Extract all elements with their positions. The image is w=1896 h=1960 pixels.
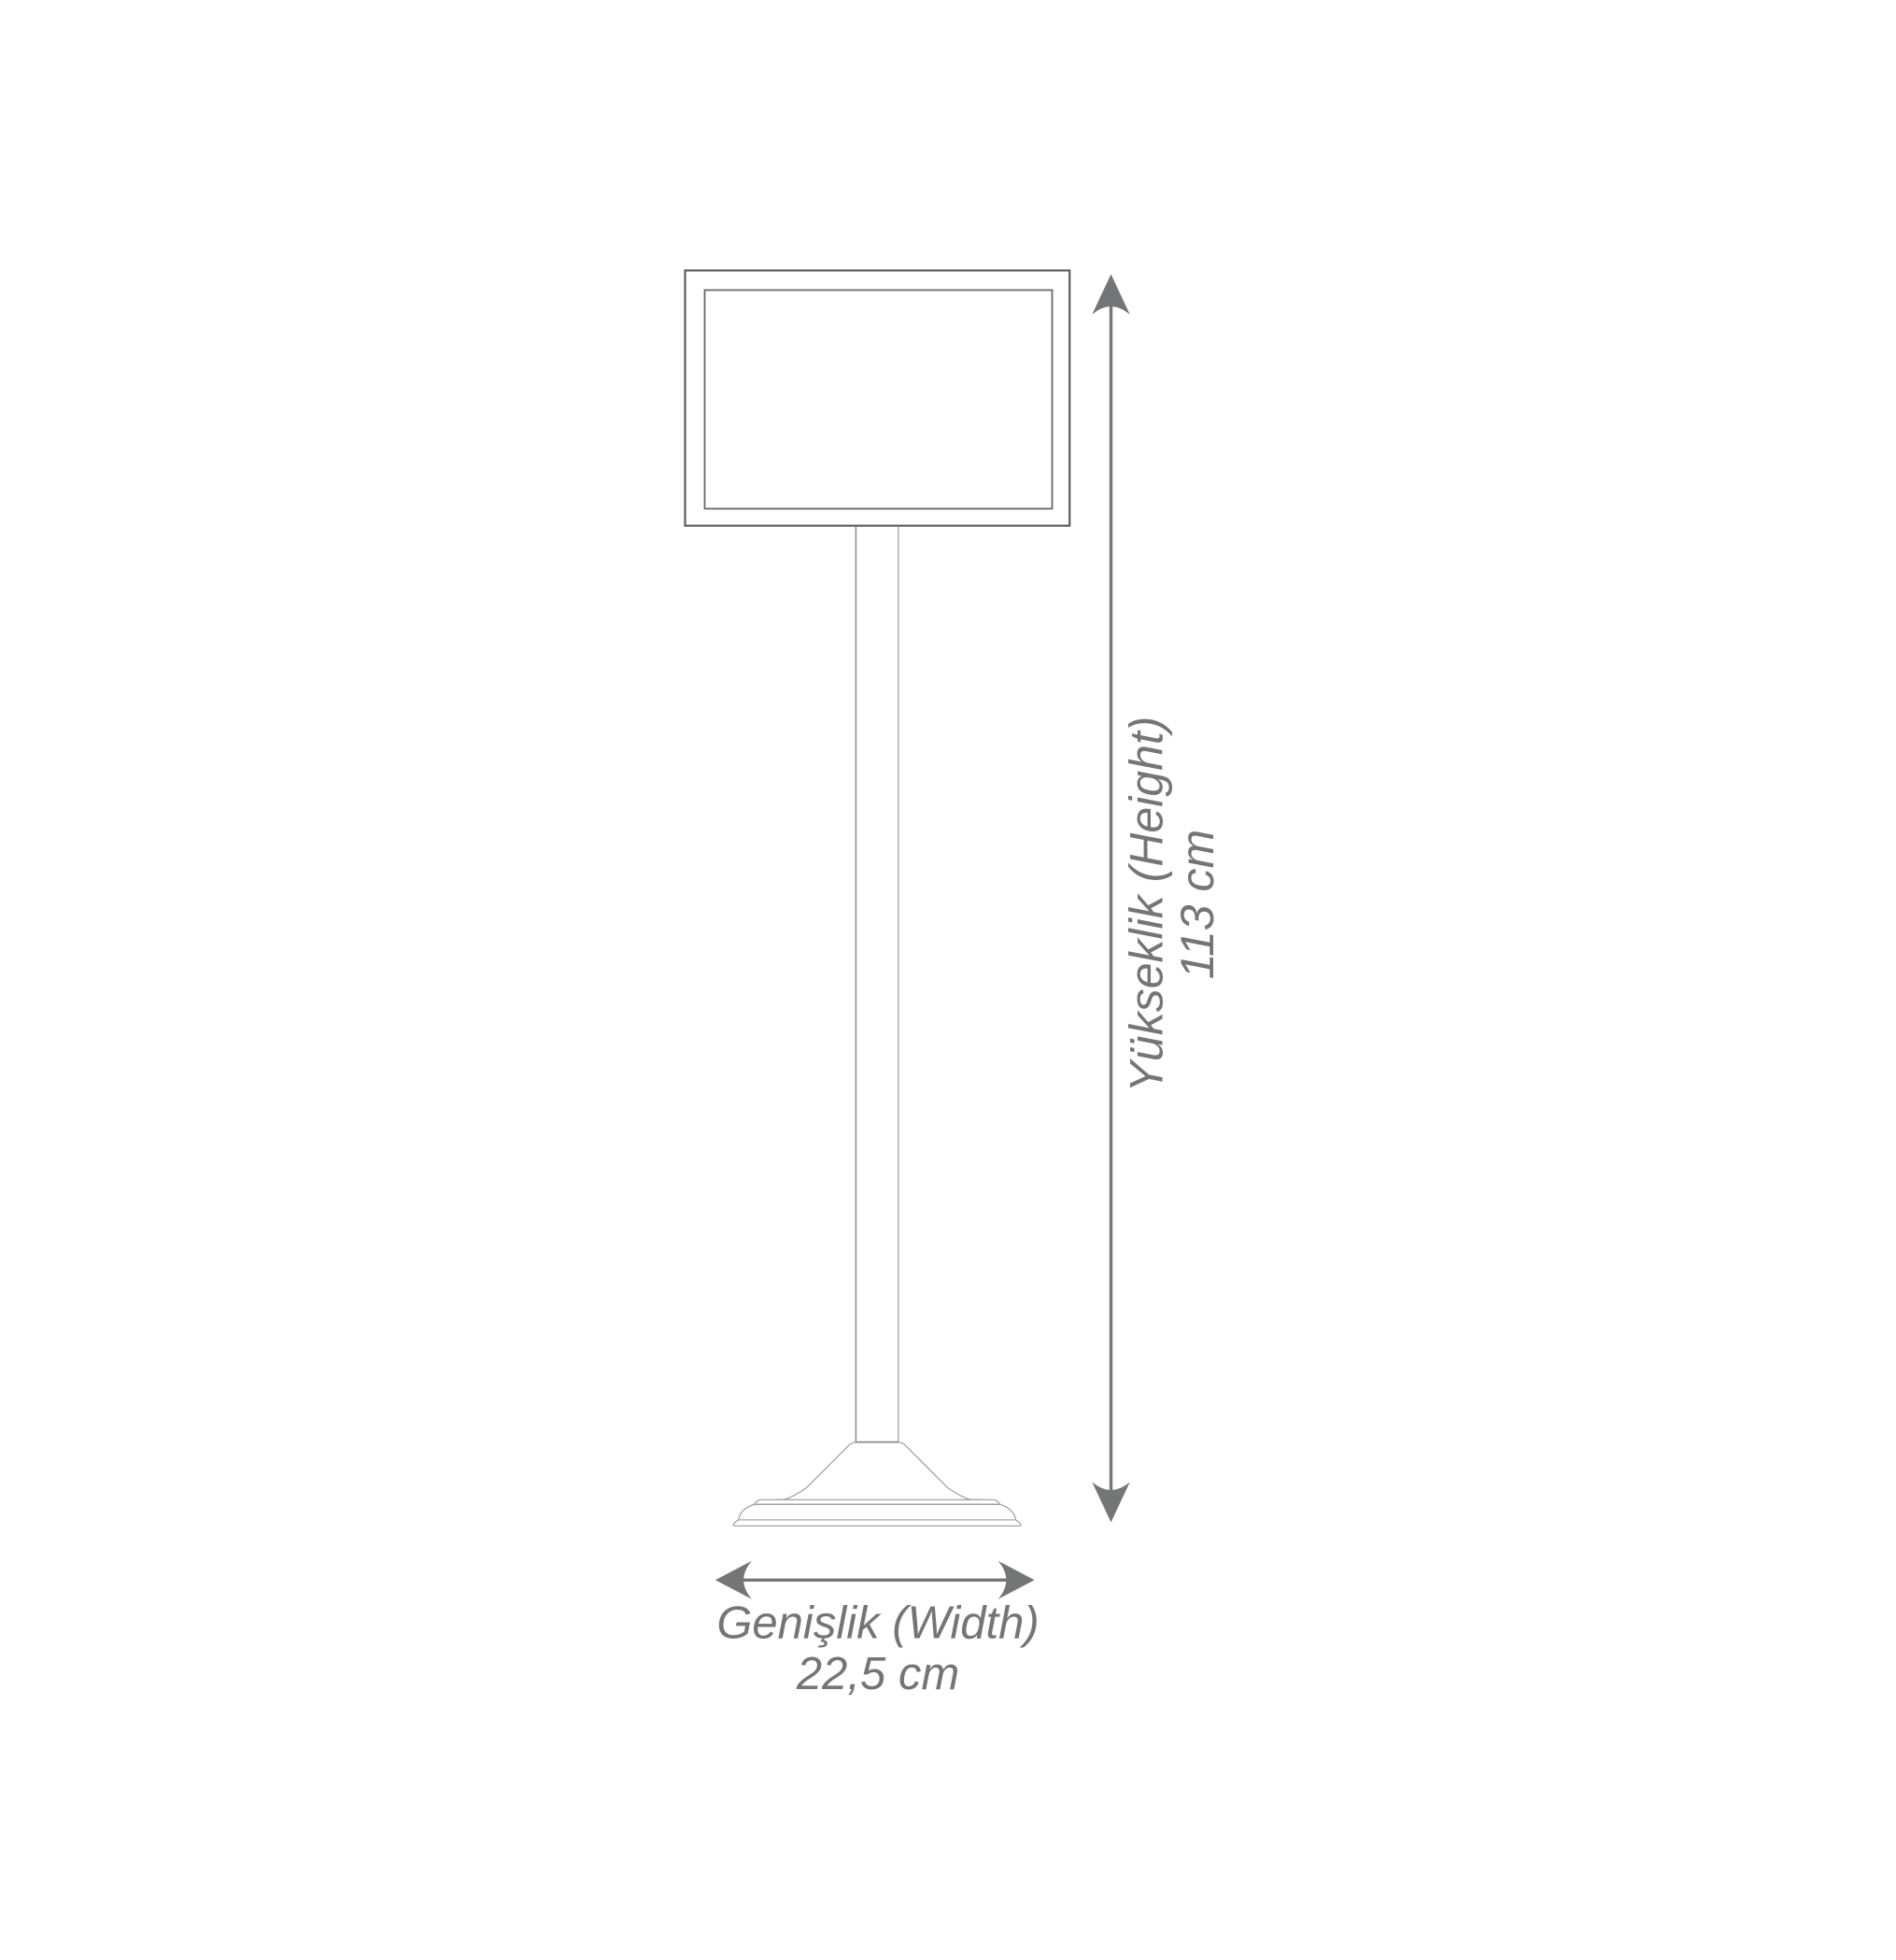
svg-text:113 cm: 113 cm (1171, 830, 1224, 979)
svg-text:22,5 cm: 22,5 cm (796, 1649, 959, 1699)
svg-text:Yükseklik (Height): Yükseklik (Height) (1120, 717, 1172, 1093)
svg-text:Genişlik (Width): Genişlik (Width) (716, 1598, 1039, 1649)
